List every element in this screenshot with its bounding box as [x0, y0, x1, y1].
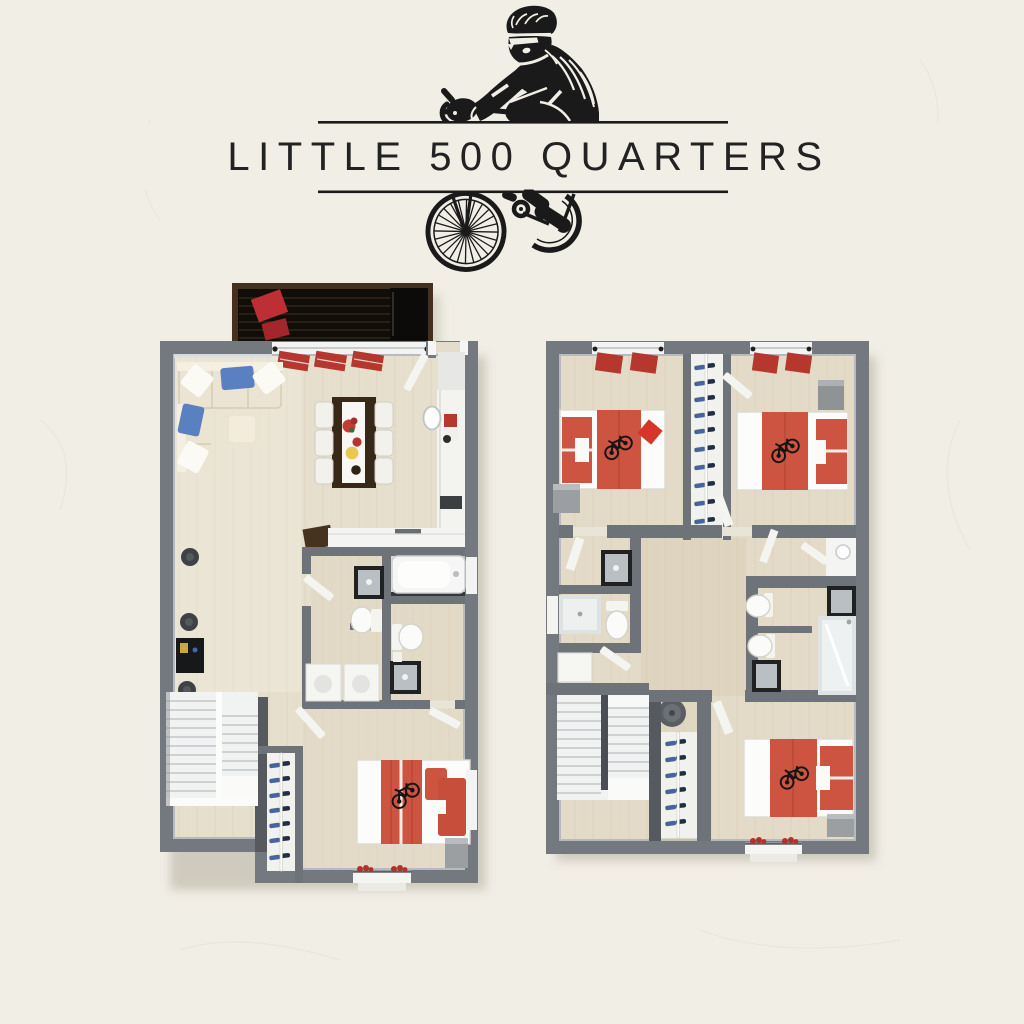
svg-text:LITTLE 500 QUARTERS: LITTLE 500 QUARTERS	[227, 135, 830, 179]
